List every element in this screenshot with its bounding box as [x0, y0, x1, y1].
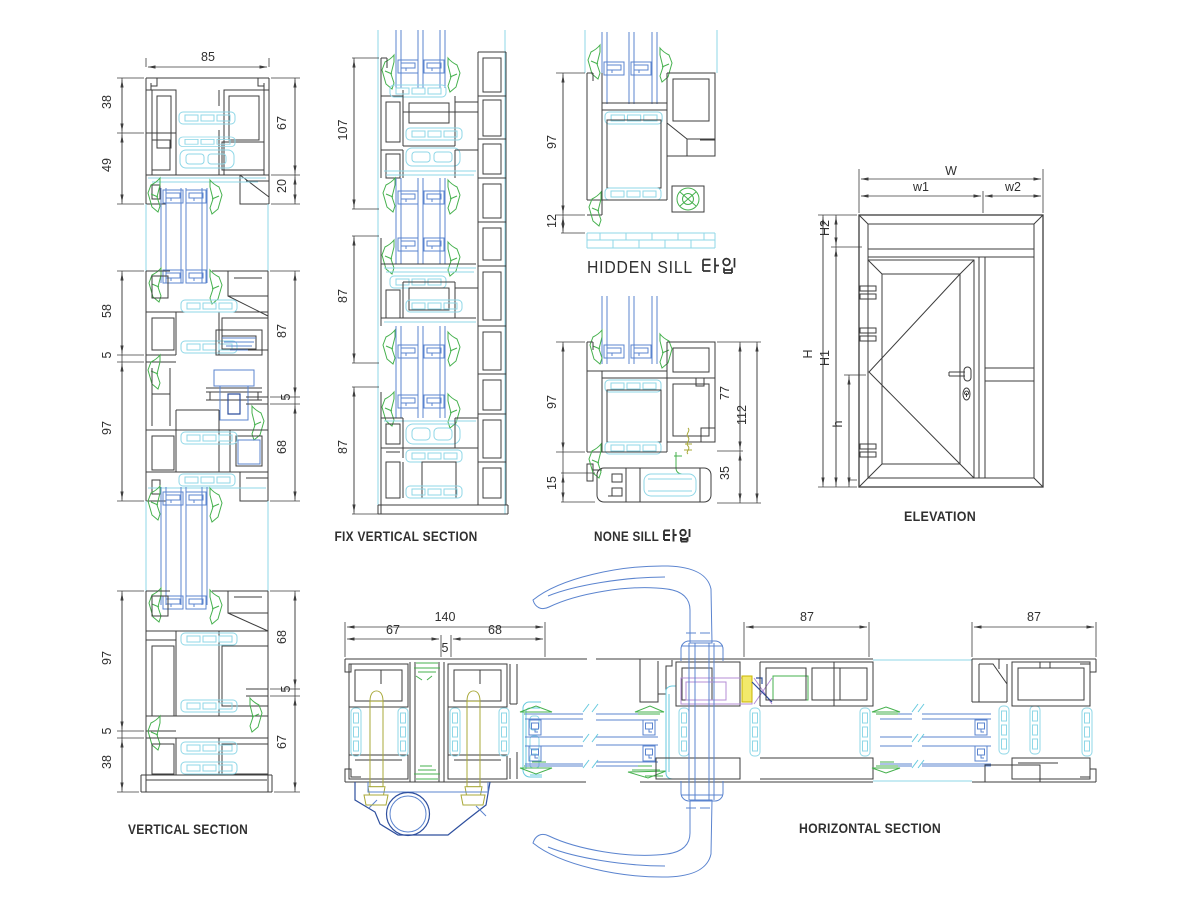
- svg-text:W: W: [945, 164, 957, 178]
- svg-text:H1: H1: [818, 350, 832, 366]
- svg-text:38: 38: [100, 95, 114, 109]
- svg-text:87: 87: [336, 440, 350, 454]
- svg-text:67: 67: [386, 623, 400, 637]
- svg-text:68: 68: [275, 630, 289, 644]
- svg-text:68: 68: [488, 623, 502, 637]
- svg-text:112: 112: [735, 405, 749, 425]
- svg-text:107: 107: [336, 120, 350, 141]
- svg-text:HIDDEN SILL: HIDDEN SILL: [587, 257, 693, 277]
- svg-text:w1: w1: [912, 180, 929, 194]
- svg-text:5: 5: [279, 685, 293, 692]
- svg-text:VERTICAL SECTION: VERTICAL SECTION: [128, 822, 248, 837]
- svg-text:58: 58: [100, 304, 114, 318]
- svg-text:NONE SILL: NONE SILL: [594, 529, 659, 544]
- svg-text:49: 49: [100, 158, 114, 172]
- svg-text:FIX VERTICAL SECTION: FIX VERTICAL SECTION: [335, 529, 478, 544]
- svg-text:5: 5: [100, 351, 114, 358]
- svg-text:97: 97: [100, 421, 114, 435]
- svg-text:87: 87: [800, 610, 814, 624]
- svg-text:H: H: [801, 349, 815, 358]
- svg-text:77: 77: [718, 386, 732, 400]
- svg-text:20: 20: [275, 179, 289, 193]
- svg-text:35: 35: [718, 466, 732, 480]
- svg-text:HORIZONTAL SECTION: HORIZONTAL SECTION: [799, 821, 941, 836]
- svg-text:5: 5: [442, 641, 449, 655]
- svg-text:87: 87: [275, 324, 289, 338]
- svg-text:12: 12: [545, 214, 559, 228]
- svg-text:38: 38: [100, 755, 114, 769]
- svg-text:5: 5: [279, 393, 293, 400]
- svg-text:97: 97: [100, 651, 114, 665]
- svg-text:h: h: [831, 420, 845, 427]
- svg-text:85: 85: [201, 50, 215, 64]
- svg-text:67: 67: [275, 116, 289, 130]
- svg-text:H2: H2: [818, 220, 832, 236]
- svg-text:5: 5: [100, 727, 114, 734]
- svg-text:ELEVATION: ELEVATION: [904, 509, 976, 524]
- svg-text:97: 97: [545, 135, 559, 149]
- svg-text:87: 87: [1027, 610, 1041, 624]
- svg-text:15: 15: [545, 476, 559, 490]
- svg-text:68: 68: [275, 440, 289, 454]
- svg-text:67: 67: [275, 735, 289, 749]
- svg-text:97: 97: [545, 395, 559, 409]
- svg-text:w2: w2: [1004, 180, 1021, 194]
- svg-text:140: 140: [435, 610, 456, 624]
- svg-text:87: 87: [336, 289, 350, 303]
